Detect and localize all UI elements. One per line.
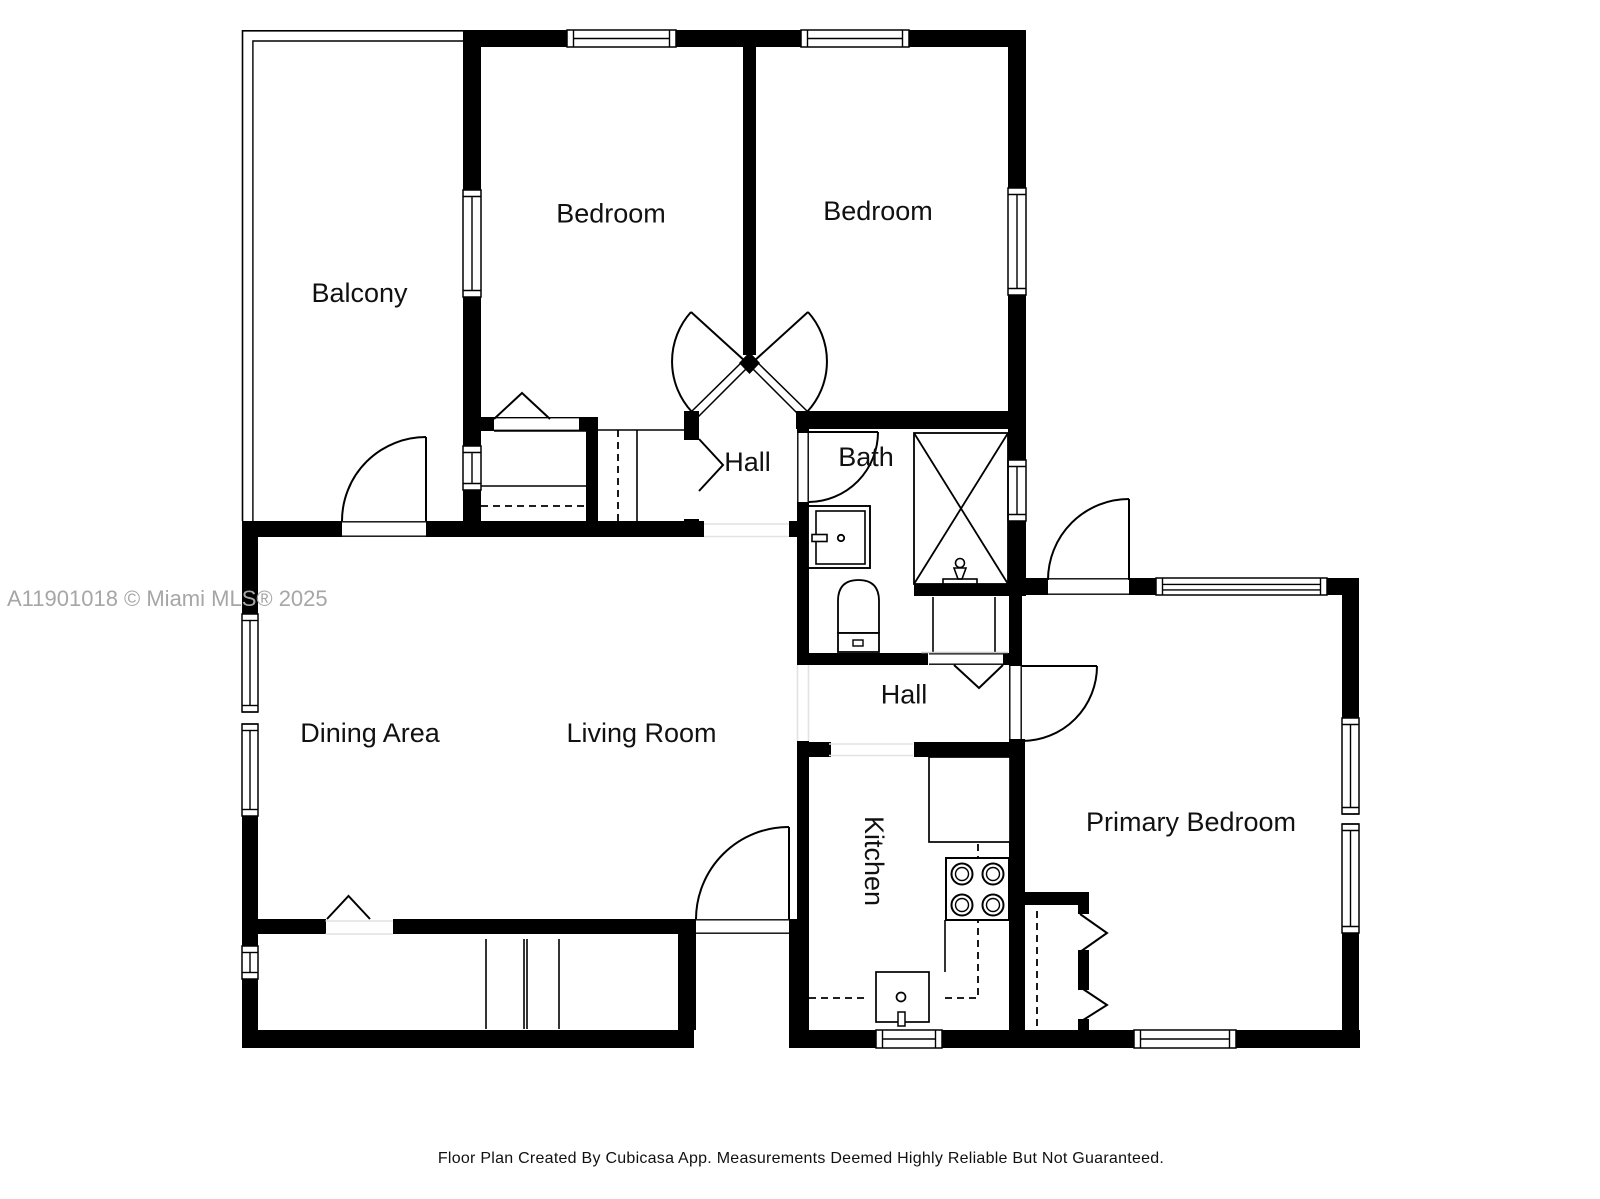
svg-text:Kitchen: Kitchen (859, 816, 889, 906)
svg-text:A11901018 © Miami MLS® 2025: A11901018 © Miami MLS® 2025 (7, 586, 328, 611)
svg-text:Dining Area: Dining Area (300, 718, 441, 748)
svg-text:Bedroom: Bedroom (823, 196, 933, 226)
svg-text:Hall: Hall (881, 680, 928, 710)
svg-text:Primary Bedroom: Primary Bedroom (1086, 807, 1296, 837)
svg-text:Bath: Bath (838, 442, 894, 472)
svg-text:Hall: Hall (724, 447, 771, 477)
svg-text:Living Room: Living Room (566, 718, 716, 748)
svg-text:Balcony: Balcony (311, 278, 408, 308)
svg-text:Floor Plan Created By Cubicasa: Floor Plan Created By Cubicasa App. Meas… (438, 1150, 1164, 1167)
svg-text:Bedroom: Bedroom (556, 199, 666, 229)
